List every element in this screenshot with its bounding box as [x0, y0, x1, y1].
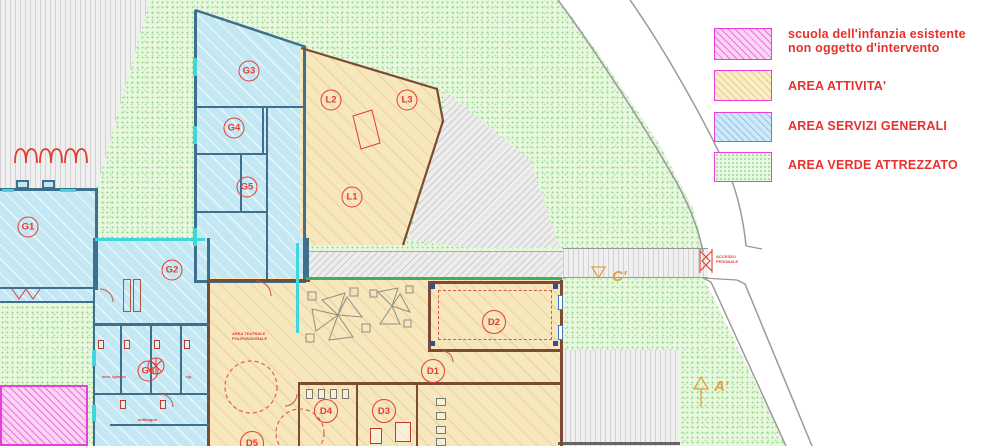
floor-plan-canvas: G1 G2 G3 G4 G5 G6 L1 L2 L3 D1 D2 D3 D4 D… [0, 0, 990, 446]
section-marker-a: A' [714, 378, 728, 395]
wall [207, 280, 210, 446]
wall [110, 424, 209, 426]
room-label-g2: G2 [162, 260, 183, 281]
parapet-notch [42, 180, 55, 189]
window-cyan [193, 126, 197, 144]
paved-area-bottom-right [560, 350, 680, 446]
room-label-l3: L3 [397, 90, 418, 111]
zone-g2-strip [208, 238, 308, 282]
room-label-text: D1 [427, 366, 439, 377]
room-label-text: G5 [241, 182, 254, 193]
wall [93, 393, 209, 395]
room-label-text: G4 [228, 123, 241, 134]
legend-line: scuola dell'infanzia esistente [788, 27, 966, 41]
room-label-text: L2 [325, 95, 336, 106]
wall [298, 384, 300, 446]
sink-fixture [318, 389, 325, 399]
toilet-fixture [160, 400, 166, 409]
legend-label-area-attivita: AREA ATTIVITA' [788, 79, 886, 93]
room-label-g5: G5 [237, 177, 258, 198]
wall [0, 287, 95, 289]
wall [416, 384, 418, 446]
wall [428, 281, 562, 284]
sink-fixture [342, 389, 349, 399]
room-label-g1: G1 [18, 217, 39, 238]
toilet-fixture [98, 340, 104, 349]
sink-fixture [306, 389, 313, 399]
toilet-fixture [184, 340, 190, 349]
room-label-d1: D1 [421, 359, 445, 383]
legend-swatch-area-verde [714, 152, 772, 182]
g6-note-bottom: antibagno [138, 417, 157, 422]
room-label-d3: D3 [372, 399, 396, 423]
window [558, 295, 563, 310]
room-label-g6: G6 [138, 361, 159, 382]
wall [120, 325, 122, 395]
sink-fixture [330, 389, 337, 399]
section-marker-c: C' [612, 268, 626, 285]
window-cyan [92, 350, 96, 366]
toilet-fixture [436, 438, 446, 446]
zone-g2-column [95, 238, 210, 446]
legend-swatch-area-attivita [714, 70, 772, 101]
toilet-fixture [436, 412, 446, 420]
area-note: AREA TEATRALE POLIFUNZIONALE [232, 331, 267, 341]
window-cyan [2, 189, 14, 192]
wall [180, 325, 182, 395]
wall [356, 384, 358, 446]
room-label-text: G2 [166, 265, 179, 276]
wall [306, 238, 309, 282]
area-note-line2: POLIFUNZIONALE [232, 336, 267, 341]
legend-swatch-area-servizi [714, 112, 772, 142]
shower-fixture [395, 422, 411, 442]
room-label-d2: D2 [482, 310, 506, 334]
walkway [563, 248, 708, 278]
g6-note-right: rip. [186, 374, 192, 379]
toilet-fixture [124, 340, 130, 349]
legend-swatch-scuola-esistente [714, 28, 772, 60]
toilet-fixture [436, 426, 446, 434]
gate-note-line2: PEDONALE [716, 259, 738, 264]
column [553, 341, 558, 346]
wall [196, 106, 304, 108]
canopy-band [305, 251, 565, 279]
window-cyan [60, 189, 76, 192]
legend-label-area-verde: AREA VERDE ATTREZZATO [788, 158, 958, 172]
glazed-wall [95, 238, 205, 241]
column [553, 284, 558, 289]
room-label-text: G1 [22, 222, 35, 233]
column [430, 341, 435, 346]
legend-label-area-servizi: AREA SERVIZI GENERALI [788, 119, 947, 133]
column [430, 284, 435, 289]
toilet-fixture [154, 340, 160, 349]
shower-fixture [370, 428, 382, 444]
wall [262, 106, 264, 155]
g6-note-left: serv. igienici [102, 374, 126, 379]
room-label-text: D2 [488, 317, 500, 328]
toilet-fixture [120, 400, 126, 409]
toilet-fixture [436, 398, 446, 406]
room-label-g4: G4 [224, 118, 245, 139]
window [558, 325, 563, 340]
legend-label-scuola-esistente: scuola dell'infanzia esistente non ogget… [788, 27, 966, 56]
room-label-d4: D4 [314, 399, 338, 423]
window-cyan [193, 228, 197, 246]
bench [133, 279, 141, 312]
wall [208, 279, 310, 282]
gate-note: ACCESSO PEDONALE [716, 254, 738, 264]
bench [123, 279, 131, 312]
room-label-text: G3 [243, 66, 256, 77]
site-bottom-line [558, 442, 680, 445]
wall [428, 349, 562, 352]
zone-scuola-esistente [0, 385, 88, 446]
room-label-g3: G3 [239, 61, 260, 82]
room-label-text: L3 [401, 95, 412, 106]
window-cyan [92, 405, 96, 421]
wall [196, 153, 266, 155]
room-label-text: D3 [378, 406, 390, 417]
wall [207, 238, 210, 280]
room-label-text: D5 [246, 438, 258, 446]
glazed-wall [296, 243, 299, 333]
zone-g1-block [0, 190, 97, 302]
room-label-l1: L1 [342, 187, 363, 208]
room-label-text: D4 [320, 406, 332, 417]
glazed-wall-green [306, 277, 562, 280]
window-cyan [193, 58, 197, 76]
room-label-text: G6 [142, 366, 155, 377]
wall [196, 211, 266, 213]
wall [0, 301, 95, 303]
parapet-notch [16, 180, 29, 189]
wall [266, 108, 268, 282]
room-label-text: L1 [346, 192, 357, 203]
room-label-l2: L2 [321, 90, 342, 111]
legend-line: non oggetto d'intervento [788, 41, 966, 55]
